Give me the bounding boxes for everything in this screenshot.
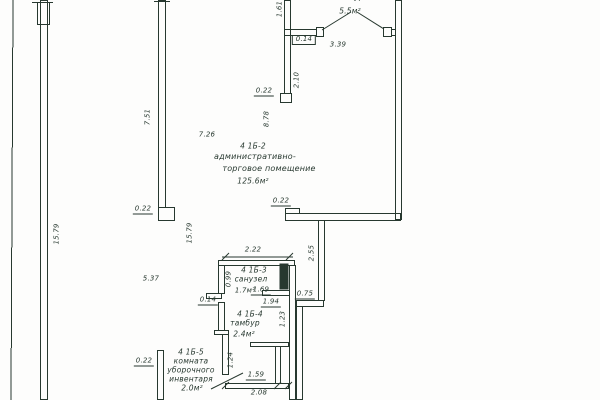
dim-2-55: 2.55 — [309, 245, 316, 261]
room-admin-name-line1: административно- — [214, 153, 296, 161]
dim-0-22-mid: 0.22 — [133, 206, 153, 215]
room-cleaning-name-line1: комната — [174, 357, 209, 365]
outer-walls — [11, 0, 402, 400]
dim-1-24: 1.24 — [228, 352, 235, 368]
dim-0-14-bottom: 0.14 — [198, 297, 218, 306]
dim-1-94: 1.94 — [261, 299, 281, 308]
room-tambour-inner-code: 4 1Б-4 — [237, 310, 263, 318]
dim-2-08: 2.08 — [251, 390, 267, 397]
dim-7-26: 7.26 — [199, 132, 215, 139]
dim-7-51: 7.51 — [145, 109, 152, 125]
dim-1-59: 1.59 — [246, 372, 266, 381]
dim-1-69: 1.69 — [251, 287, 271, 296]
room-sanuzel-code: 4 1Б-3 — [241, 266, 267, 274]
dim-1-61: 1.61 — [277, 1, 284, 17]
room-cleaning-code: 4 1Б-5 — [178, 348, 204, 356]
dim-0-22-bottom: 0.22 — [134, 358, 154, 367]
room-tambour-inner-name: тамбур — [230, 319, 260, 327]
room-sanuzel-name: санузел — [235, 275, 268, 283]
dim-0-14-top: 0.14 — [292, 35, 316, 45]
dim-2-22: 2.22 — [245, 247, 261, 254]
floor-plan-canvas: тамбур 5.5м² 4 1Б-2 административно- тор… — [0, 0, 600, 400]
dim-1-23: 1.23 — [280, 311, 287, 327]
dim-15-79-left: 15.79 — [54, 223, 61, 244]
dim-3-39: 3.39 — [330, 42, 346, 49]
dim-5-37: 5.37 — [143, 276, 159, 283]
room-admin-code: 4 1Б-2 — [240, 142, 266, 150]
room-tambour-inner-area: 2.4м² — [233, 330, 255, 338]
vent-shaft — [280, 264, 288, 289]
dim-0-22-door: 0.22 — [254, 88, 274, 97]
dim-15-79-mid: 15.79 — [187, 222, 194, 243]
dim-0-99: 0.99 — [226, 271, 233, 287]
room-tambour-top-name: тамбур — [334, 0, 364, 1]
floor-plan-walls — [0, 0, 600, 400]
room-cleaning-name-line3: инвентаря — [169, 375, 213, 383]
dim-0-22-right: 0.22 — [271, 198, 291, 207]
room-cleaning-name-line2: уборочного — [167, 366, 214, 374]
dim-2-10: 2.10 — [294, 72, 301, 88]
room-admin-area: 125.6м² — [237, 177, 269, 185]
room-admin-name-line2: торговое помещение — [222, 165, 315, 173]
dim-0-75: 0.75 — [295, 291, 315, 300]
room-cleaning-area: 2.0м² — [181, 384, 203, 392]
room-tambour-top-area: 5.5м² — [339, 7, 361, 15]
dim-8-78: 8.78 — [264, 111, 271, 127]
